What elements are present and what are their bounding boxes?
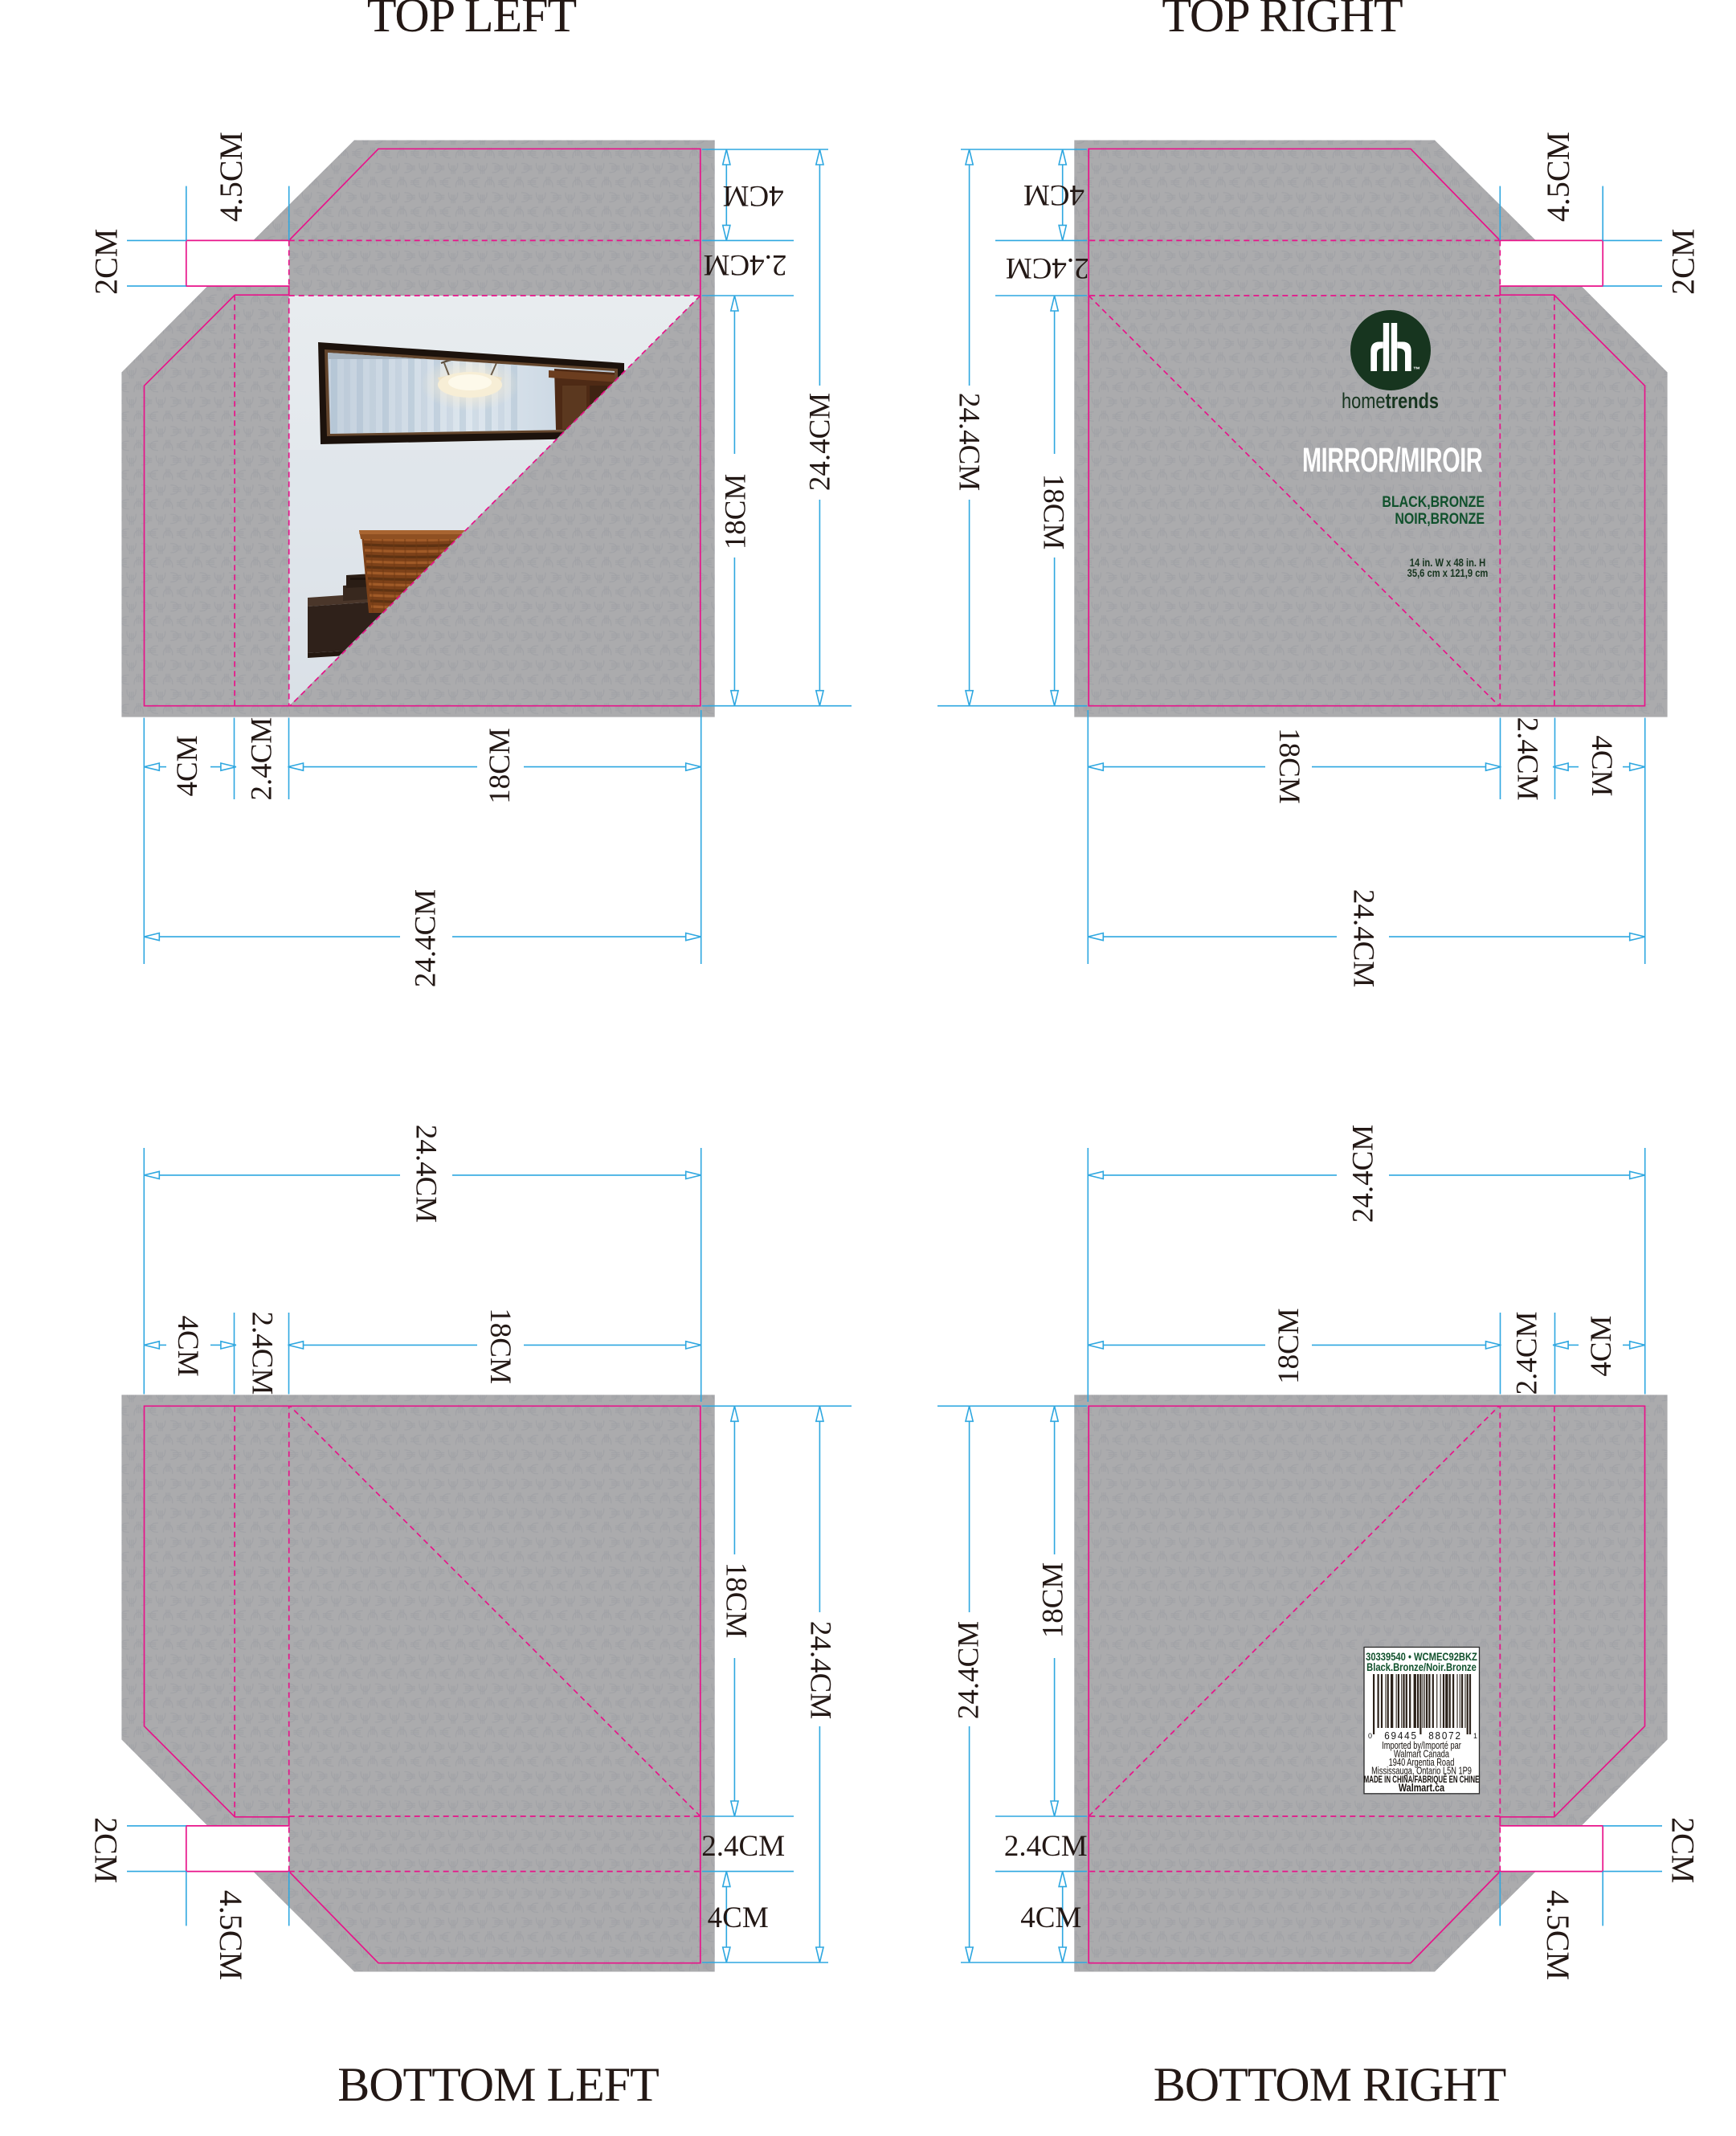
svg-text:2.4CM: 2.4CM xyxy=(704,248,787,281)
svg-text:24.4CM: 24.4CM xyxy=(953,393,986,491)
svg-text:4.5CM: 4.5CM xyxy=(1540,1890,1576,1980)
svg-text:4.5CM: 4.5CM xyxy=(1540,132,1576,222)
svg-text:2.4CM: 2.4CM xyxy=(1510,1311,1543,1395)
svg-text:Black.Bronze/Noir.Bronze: Black.Bronze/Noir.Bronze xyxy=(1366,1661,1477,1673)
svg-text:hometrends: hometrends xyxy=(1342,389,1439,413)
svg-text:0: 0 xyxy=(1368,1732,1372,1740)
svg-text:4CM: 4CM xyxy=(1020,1901,1081,1934)
svg-text:NOIR,BRONZE: NOIR,BRONZE xyxy=(1395,510,1485,528)
svg-text:18CM: 18CM xyxy=(1037,474,1070,550)
svg-text:4CM: 4CM xyxy=(708,1901,769,1934)
svg-text:18CM: 18CM xyxy=(484,1308,517,1384)
svg-text:BLACK,BRONZE: BLACK,BRONZE xyxy=(1382,493,1485,511)
svg-text:24.4CM: 24.4CM xyxy=(803,1621,836,1719)
svg-text:18CM: 18CM xyxy=(484,728,517,804)
svg-text:4.5CM: 4.5CM xyxy=(213,1890,249,1980)
svg-text:2.4CM: 2.4CM xyxy=(1006,251,1089,284)
svg-text:4CM: 4CM xyxy=(1585,1316,1618,1377)
svg-text:18CM: 18CM xyxy=(719,1562,752,1639)
svg-text:24.4CM: 24.4CM xyxy=(1346,889,1379,987)
svg-text:24.4CM: 24.4CM xyxy=(410,889,443,987)
svg-text:18CM: 18CM xyxy=(1272,1308,1305,1384)
svg-text:2.4CM: 2.4CM xyxy=(246,717,279,801)
svg-text:4.5CM: 4.5CM xyxy=(213,132,249,222)
svg-text:24.4CM: 24.4CM xyxy=(803,393,836,491)
svg-text:BOTTOM LEFT: BOTTOM LEFT xyxy=(337,2058,659,2111)
svg-text:2CM: 2CM xyxy=(1665,1817,1701,1883)
svg-text:2CM: 2CM xyxy=(88,229,125,295)
svg-text:4CM: 4CM xyxy=(1585,735,1618,796)
svg-text:2.4CM: 2.4CM xyxy=(1004,1830,1088,1863)
svg-text:TOP RIGHT: TOP RIGHT xyxy=(1162,0,1403,42)
svg-text:Walmart.ca: Walmart.ca xyxy=(1399,1782,1444,1794)
svg-text:BOTTOM RIGHT: BOTTOM RIGHT xyxy=(1154,2058,1506,2111)
svg-text:2CM: 2CM xyxy=(88,1817,125,1883)
svg-text:2.4CM: 2.4CM xyxy=(246,1311,279,1395)
svg-text:2CM: 2CM xyxy=(1665,229,1701,295)
svg-text:1: 1 xyxy=(1473,1732,1477,1740)
svg-text:4CM: 4CM xyxy=(171,735,204,796)
svg-text:35,6 cm x 121,9 cm: 35,6 cm x 121,9 cm xyxy=(1407,567,1489,579)
svg-text:18CM: 18CM xyxy=(1272,728,1305,804)
svg-text:2.4CM: 2.4CM xyxy=(1510,717,1543,801)
svg-text:TOP LEFT: TOP LEFT xyxy=(367,0,577,42)
svg-text:24.4CM: 24.4CM xyxy=(1346,1125,1379,1223)
svg-text:18CM: 18CM xyxy=(1037,1562,1070,1639)
svg-text:18CM: 18CM xyxy=(719,474,752,550)
svg-text:4CM: 4CM xyxy=(171,1316,204,1377)
svg-text:24.4CM: 24.4CM xyxy=(410,1125,443,1223)
svg-text:24.4CM: 24.4CM xyxy=(953,1621,986,1719)
svg-text:MIRROR/MIROIR: MIRROR/MIROIR xyxy=(1302,440,1482,479)
svg-text:4CM: 4CM xyxy=(723,179,784,212)
svg-text:2.4CM: 2.4CM xyxy=(701,1830,785,1863)
svg-text:™: ™ xyxy=(1413,366,1420,374)
svg-text:4CM: 4CM xyxy=(1023,178,1084,211)
